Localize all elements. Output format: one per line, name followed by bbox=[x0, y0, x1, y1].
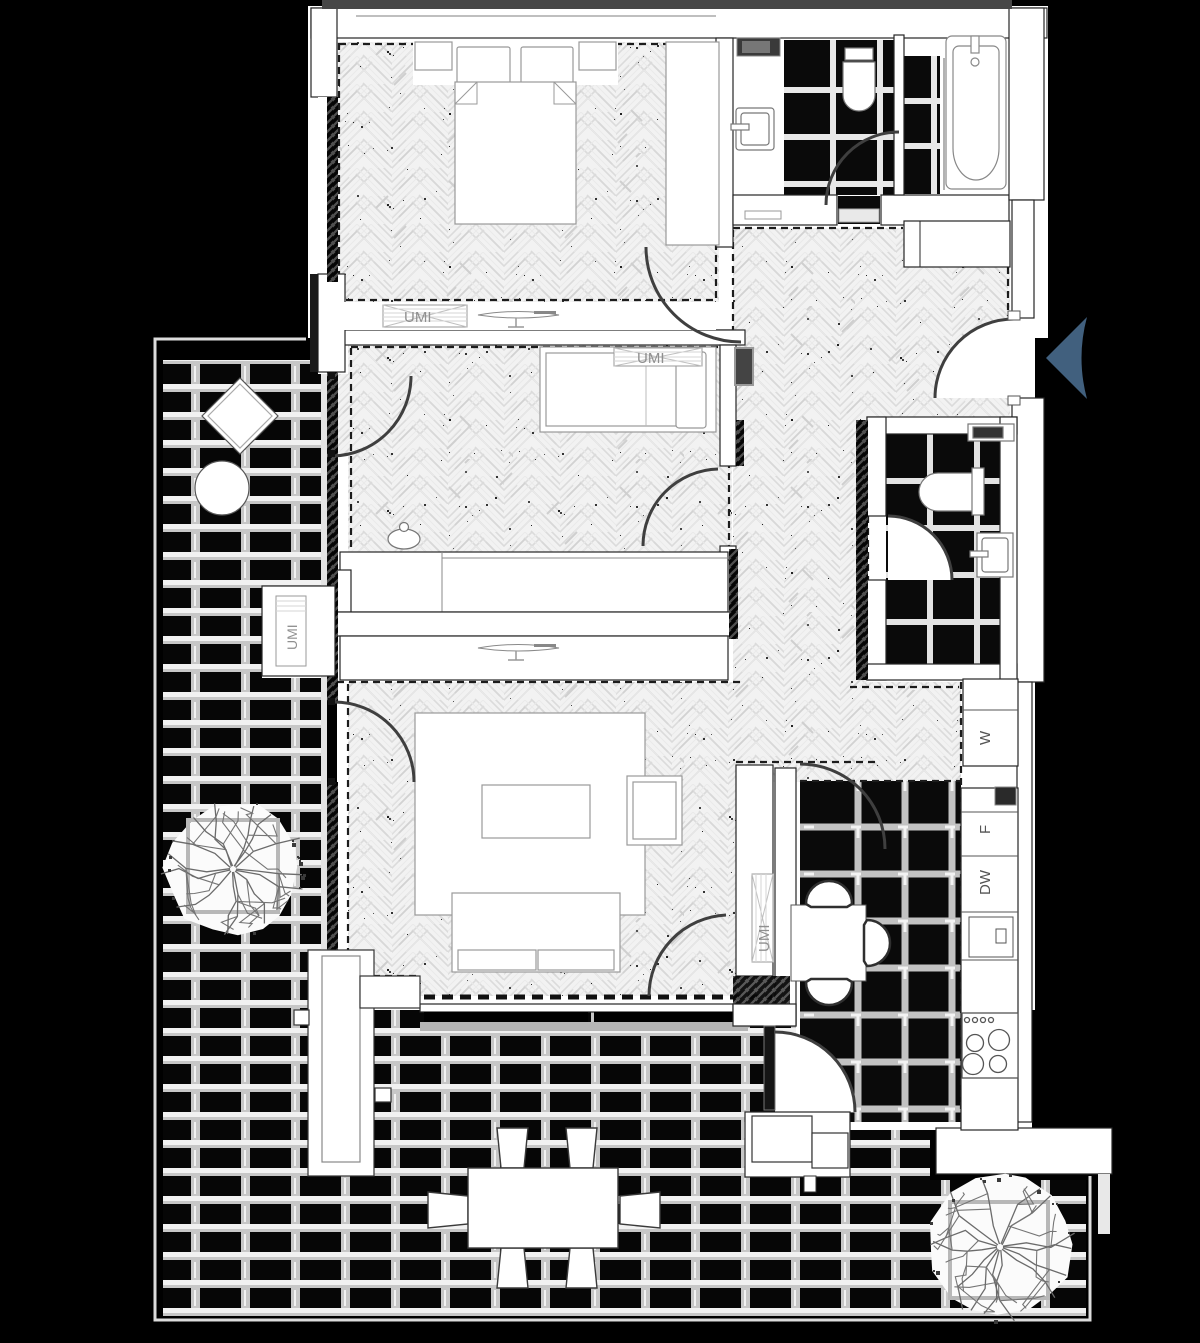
svg-text:F: F bbox=[977, 825, 994, 834]
svg-text:W: W bbox=[977, 730, 994, 745]
svg-text:UMI: UMI bbox=[756, 925, 773, 953]
svg-text:UMI: UMI bbox=[637, 350, 665, 367]
svg-text:DW: DW bbox=[977, 869, 994, 895]
svg-text:UMI: UMI bbox=[284, 624, 300, 650]
svg-text:UMI: UMI bbox=[404, 309, 432, 326]
